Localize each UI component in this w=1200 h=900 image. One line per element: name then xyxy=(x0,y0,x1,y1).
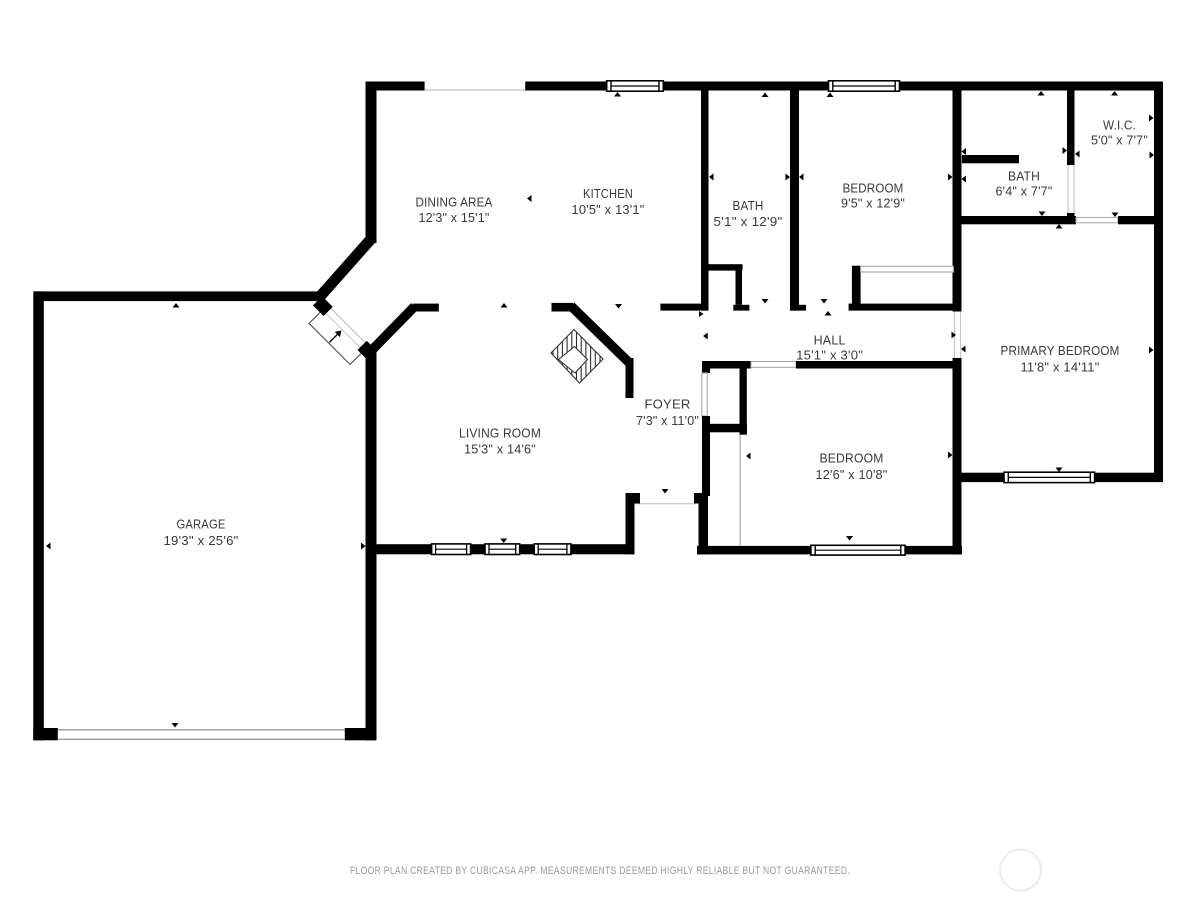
svg-text:15'1" x 3'0": 15'1" x 3'0" xyxy=(796,348,863,363)
svg-text:11'8" x 14'11": 11'8" x 14'11" xyxy=(1021,360,1100,375)
svg-text:BATH: BATH xyxy=(1008,169,1040,184)
svg-text:10'5" x 13'1": 10'5" x 13'1" xyxy=(572,202,645,217)
svg-text:BATH: BATH xyxy=(733,198,764,213)
svg-text:LIVING ROOM: LIVING ROOM xyxy=(459,426,541,441)
svg-text:BEDROOM: BEDROOM xyxy=(843,181,904,196)
svg-text:W.I.C.: W.I.C. xyxy=(1103,118,1136,133)
svg-text:DINING AREA: DINING AREA xyxy=(416,195,493,210)
svg-text:9'5" x 12'9": 9'5" x 12'9" xyxy=(841,196,905,211)
svg-text:5'0" x 7'7": 5'0" x 7'7" xyxy=(1091,133,1148,148)
svg-text:BEDROOM: BEDROOM xyxy=(820,451,884,466)
svg-text:FLOOR PLAN CREATED BY CUBICASA: FLOOR PLAN CREATED BY CUBICASA APP. MEAS… xyxy=(350,865,850,877)
svg-text:15'3" x 14'6": 15'3" x 14'6" xyxy=(464,442,536,457)
svg-text:19'3" x 25'6": 19'3" x 25'6" xyxy=(164,533,239,548)
svg-text:7'3" x 11'0": 7'3" x 11'0" xyxy=(636,413,699,428)
svg-text:6'4" x 7'7": 6'4" x 7'7" xyxy=(996,184,1053,199)
svg-text:PRIMARY BEDROOM: PRIMARY BEDROOM xyxy=(1001,343,1120,358)
svg-text:GARAGE: GARAGE xyxy=(177,517,226,532)
svg-text:FOYER: FOYER xyxy=(645,397,691,412)
svg-text:12'3" x 15'1": 12'3" x 15'1" xyxy=(419,210,490,225)
svg-text:KITCHEN: KITCHEN xyxy=(583,186,633,201)
svg-text:5'1" x 12'9": 5'1" x 12'9" xyxy=(714,214,783,229)
svg-text:HALL: HALL xyxy=(814,332,846,347)
svg-text:12'6" x 10'8": 12'6" x 10'8" xyxy=(816,467,888,482)
